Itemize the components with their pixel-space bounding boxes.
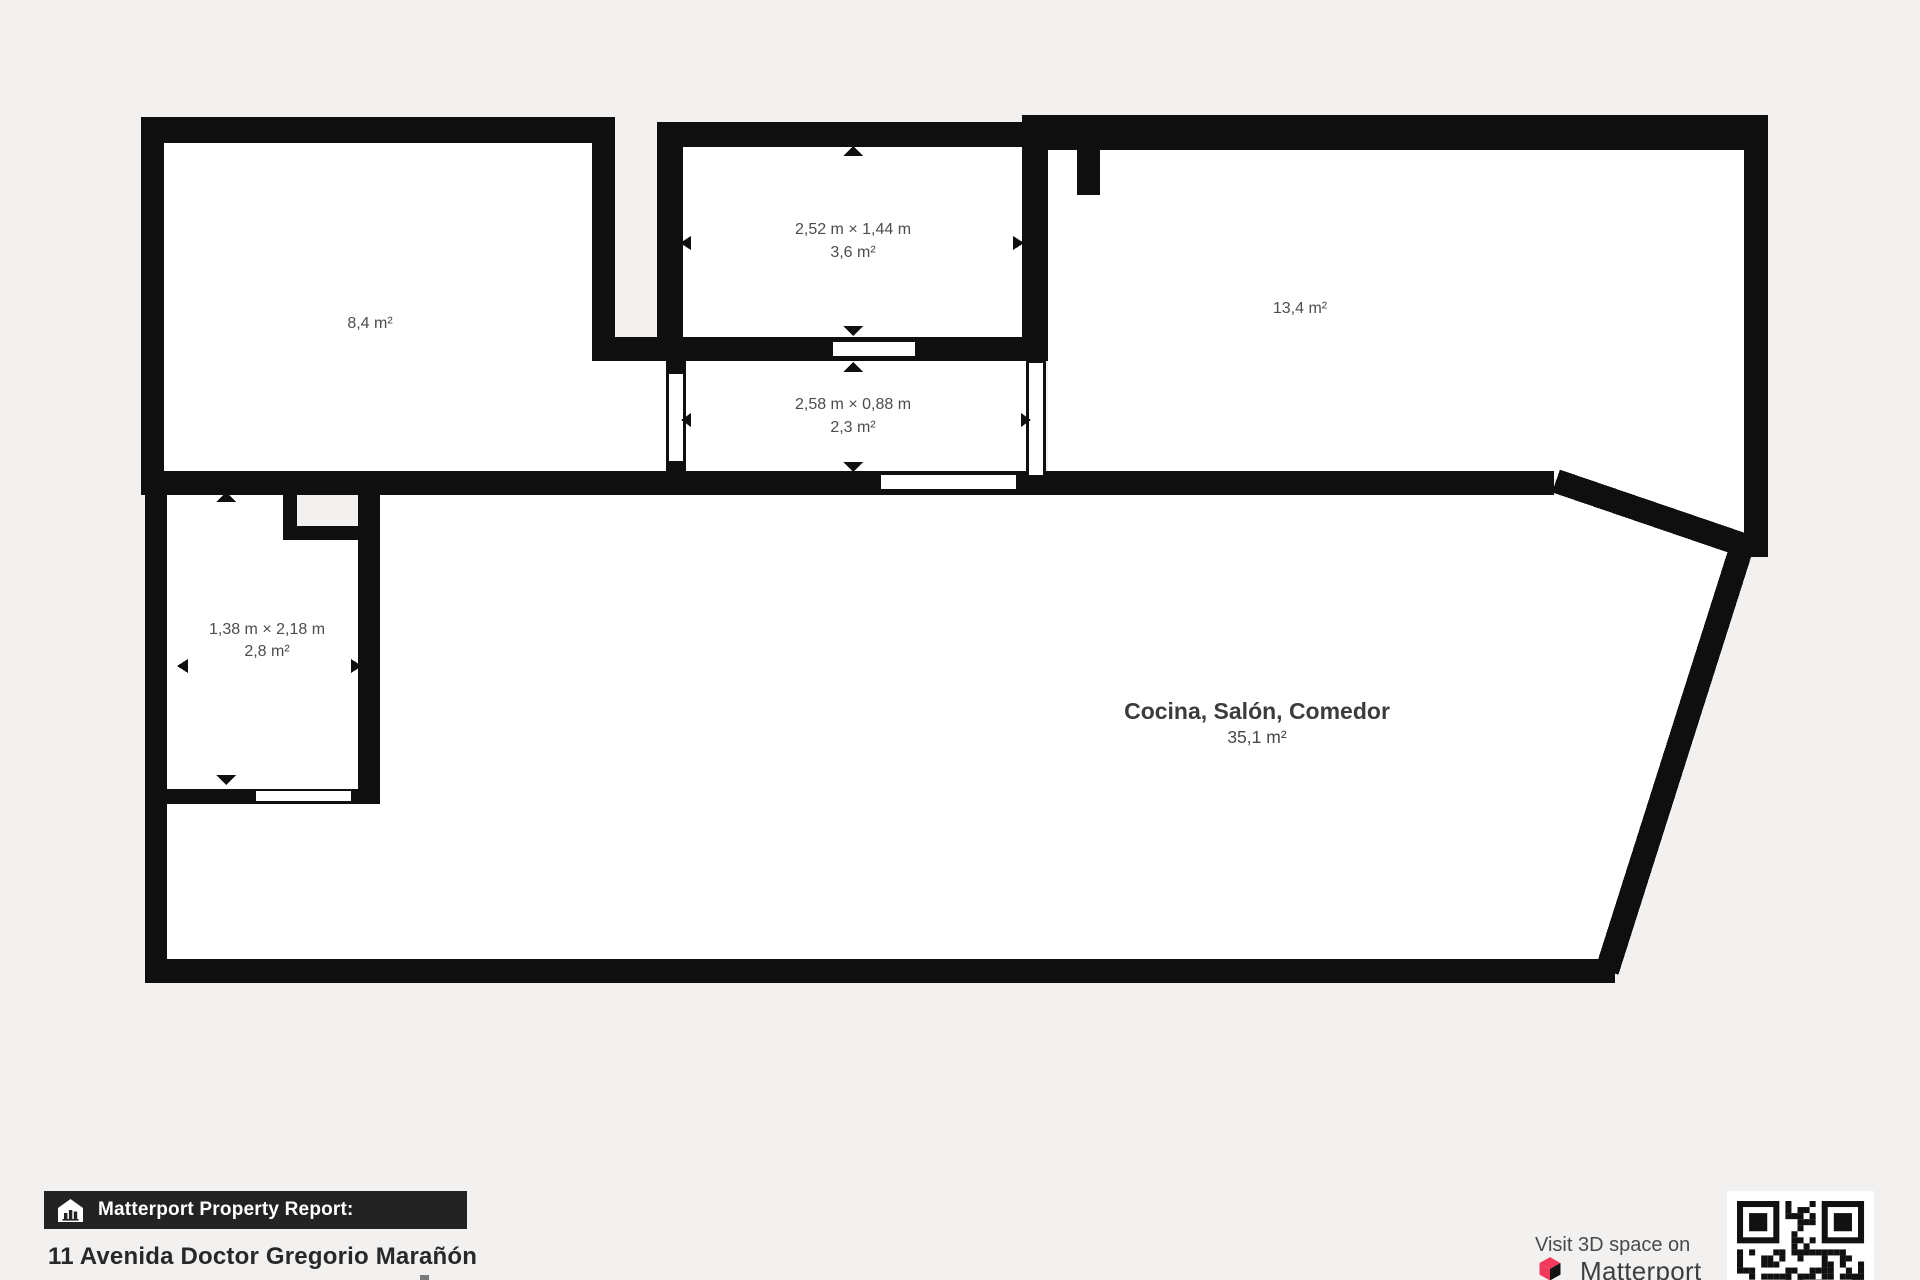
door-top-middle-bottom [832, 341, 916, 357]
report-badge-label: Matterport Property Report: [98, 1199, 354, 1221]
room-top-middle-dims: 2,52 m × 1,44 m [795, 221, 911, 238]
room-top-right-area: 13,4 m² [1273, 300, 1328, 317]
main-room-area: 35,1 m² [1227, 727, 1286, 747]
hallway-interior [686, 359, 1026, 473]
room-top-left-interior-lower [592, 361, 668, 473]
cutoff-text-fragment [420, 1275, 429, 1280]
qr-code-pattern [1727, 1191, 1874, 1280]
room-top-middle-area: 3,6 m² [830, 244, 876, 261]
matterport-floorplan-page: 8,4 m² 2,52 m × 1,44 m 3,6 m² 13,4 m² 2,… [0, 0, 1920, 1280]
door-hallway-left [668, 373, 684, 462]
hallway-dims: 2,58 m × 0,88 m [795, 396, 911, 413]
property-address: 11 Avenida Doctor Gregorio Marañón [48, 1243, 477, 1271]
room-top-left-interior [164, 143, 592, 473]
house-chart-icon [57, 1197, 84, 1224]
brand-name: Matterport [1580, 1256, 1702, 1280]
visit-3d-label: Visit 3D space on [1535, 1234, 1690, 1257]
hallway-area: 2,3 m² [830, 419, 876, 436]
matterport-logo-icon [1536, 1256, 1564, 1280]
room-interiors [164, 143, 1744, 971]
qr-code [1727, 1191, 1874, 1280]
room-left-small-dims: 1,38 m × 2,18 m [209, 621, 325, 638]
door-left-small-bottom [255, 790, 352, 802]
main-room-interior [167, 483, 1741, 971]
main-room-name: Cocina, Salón, Comedor [1124, 698, 1390, 724]
door-hallway-bottom [880, 474, 1017, 490]
room-left-small-area: 2,8 m² [244, 643, 290, 660]
room-top-left-area: 8,4 m² [347, 315, 393, 332]
door-hallway-right [1028, 362, 1044, 476]
report-badge: Matterport Property Report: [44, 1191, 467, 1229]
brand-row: Matterport [1536, 1256, 1702, 1280]
floor-plan: 8,4 m² 2,52 m × 1,44 m 3,6 m² 13,4 m² 2,… [0, 0, 1920, 1280]
void-notch [297, 493, 358, 526]
